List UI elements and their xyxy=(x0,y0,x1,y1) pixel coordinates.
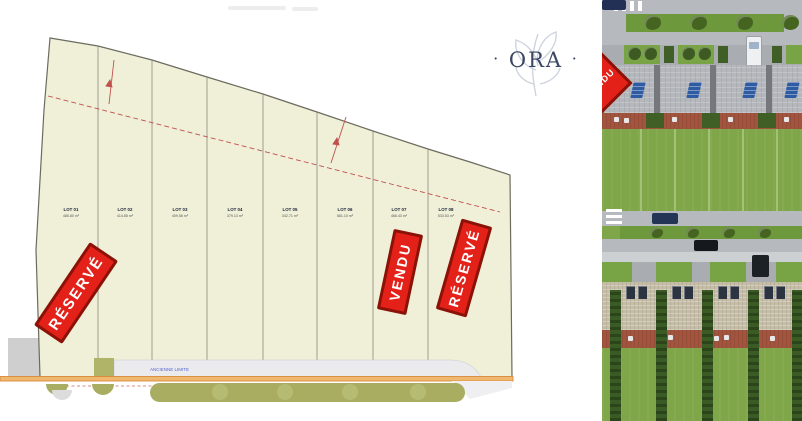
hedge-post xyxy=(664,46,674,63)
logo-name: ORA xyxy=(509,48,563,72)
patio-furniture xyxy=(714,336,719,341)
roof-window xyxy=(764,286,773,299)
aerial-render-panel: VENDU xyxy=(602,0,802,421)
lot-area: 414.85 m² xyxy=(117,214,134,218)
front-garden xyxy=(602,262,632,282)
lot-label: LOT 01 xyxy=(64,207,79,212)
logo-text: · ORA · xyxy=(478,48,594,72)
lot-area: 485.80 m² xyxy=(63,214,80,218)
roof-window xyxy=(718,286,727,299)
green-plot-square xyxy=(94,358,114,377)
car-black xyxy=(694,240,718,251)
car-dark-top xyxy=(602,0,626,10)
logo-right-dot: · xyxy=(572,49,579,68)
patio-furniture xyxy=(672,117,677,122)
car-windshield xyxy=(749,42,759,49)
crosswalk-middle xyxy=(606,208,622,224)
lot-area: 466.43 m² xyxy=(391,214,408,218)
road-label: ANCIENNE LIMITE xyxy=(150,367,189,372)
roof-window xyxy=(730,286,739,299)
ora-logo: · ORA · xyxy=(478,26,594,98)
lot-label: LOT 06 xyxy=(338,207,353,212)
tree-icon xyxy=(722,227,735,238)
lot-label: LOT 04 xyxy=(228,207,243,212)
lot-label: LOT 08 xyxy=(439,207,454,212)
house-roof xyxy=(716,65,766,113)
screenshot-root: ANCIENNE LIMITE LOT 01 485.80 m² LOT 02 xyxy=(0,0,802,421)
roof-window xyxy=(638,286,647,299)
car-blue xyxy=(652,213,678,224)
patio-furniture xyxy=(784,117,789,122)
lawn-divider xyxy=(640,129,642,211)
lot-label: LOT 07 xyxy=(392,207,407,212)
lot-area: 379.13 m² xyxy=(227,214,244,218)
car-dark-parked xyxy=(752,255,769,277)
patio-furniture xyxy=(628,336,633,341)
patio-furniture xyxy=(728,117,733,122)
lot-label: LOT 02 xyxy=(118,207,133,212)
tree-icon xyxy=(782,15,799,30)
front-garden xyxy=(776,262,802,282)
sidewalk xyxy=(602,252,802,262)
lawn-divider xyxy=(776,129,778,211)
terrace-hedge xyxy=(758,113,776,128)
patio-furniture xyxy=(624,118,629,123)
road-middle xyxy=(602,211,802,226)
patio-furniture xyxy=(724,335,729,340)
orange-road-line xyxy=(0,377,513,382)
hedge-column xyxy=(748,290,759,421)
tree-icon xyxy=(690,15,707,30)
house-roof xyxy=(660,65,710,113)
car-white-parked xyxy=(746,36,762,68)
patio-furniture xyxy=(668,335,673,340)
lawn-row1 xyxy=(602,129,802,211)
hedge-column xyxy=(656,290,667,421)
hedge-column xyxy=(792,290,802,421)
lot-area: 409.56 m² xyxy=(172,214,189,218)
lawn-divider xyxy=(708,129,710,211)
front-strip-row2 xyxy=(602,262,802,282)
front-garden xyxy=(786,45,802,64)
logo-left-dot: · xyxy=(493,49,500,68)
render-banner-text: VENDU xyxy=(602,67,616,100)
roof-window xyxy=(776,286,785,299)
tree-icon xyxy=(650,227,663,238)
roof-window xyxy=(626,286,635,299)
lawn-divider xyxy=(742,129,744,211)
bush-icon xyxy=(644,47,657,60)
grey-arc xyxy=(52,390,72,400)
patio-furniture xyxy=(614,117,619,122)
lawn-divider xyxy=(674,129,676,211)
tree-icon xyxy=(644,15,661,30)
front-garden xyxy=(710,262,746,282)
bush-icon xyxy=(698,47,711,60)
lot-area: 342.71 m² xyxy=(282,214,299,218)
roof-window xyxy=(684,286,693,299)
tree-icon xyxy=(686,227,699,238)
roof-window xyxy=(672,286,681,299)
lot-area: 533.53 m² xyxy=(438,214,455,218)
tree-icon xyxy=(736,15,753,30)
lot-area: 581.10 m² xyxy=(337,214,354,218)
terrace-hedge xyxy=(646,113,664,128)
bush-icon xyxy=(628,47,641,60)
lot-plan-panel: ANCIENNE LIMITE LOT 01 485.80 m² LOT 02 xyxy=(0,0,583,421)
patio-furniture xyxy=(770,336,775,341)
bush-icon xyxy=(682,47,695,60)
tree-icon xyxy=(758,227,771,238)
terrace-hedge xyxy=(702,113,720,128)
road-second xyxy=(602,33,802,45)
hedges-trees xyxy=(46,383,465,402)
hedge-column xyxy=(610,290,621,421)
green-median-middle xyxy=(620,226,802,239)
lot-label: LOT 03 xyxy=(173,207,188,212)
hedge-post xyxy=(718,46,728,63)
front-garden xyxy=(656,262,692,282)
hedge-column xyxy=(702,290,713,421)
lot-label: LOT 05 xyxy=(283,207,298,212)
hedge-post xyxy=(772,46,782,63)
